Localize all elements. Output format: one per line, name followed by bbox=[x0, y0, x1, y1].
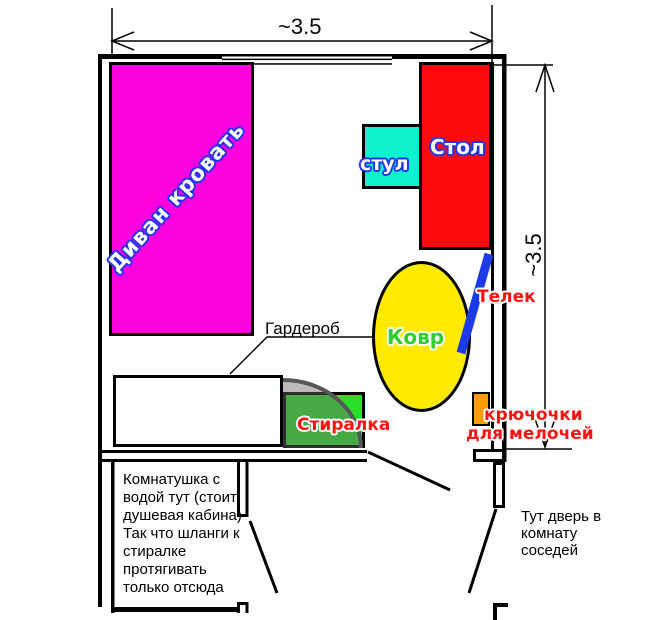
wardrobe-label: Гардероб bbox=[265, 320, 340, 338]
table-label: Стол bbox=[430, 135, 485, 159]
hooks-label-line1: крючочки bbox=[484, 405, 583, 425]
utility-note-line: водой тут (стоит bbox=[123, 489, 242, 507]
hooks-label-line2: для мелочей bbox=[466, 424, 594, 444]
neighbor-note-line: соседей bbox=[521, 542, 601, 559]
utility-room-note: Комнатушка с водой тут (стоит душевая ка… bbox=[123, 471, 242, 597]
dimension-top-label: ~3.5 bbox=[278, 14, 321, 40]
neighbor-door-note: Тут дверь в комнату соседей bbox=[521, 508, 601, 559]
utility-note-line: стиралке bbox=[123, 543, 242, 561]
neighbor-note-line: комнату bbox=[521, 525, 601, 542]
utility-note-line: протягивать bbox=[123, 561, 242, 579]
tv-label: Телек bbox=[477, 287, 536, 307]
utility-note-line: только отсюда bbox=[123, 579, 242, 597]
utility-note-line: Так что шланги к bbox=[123, 525, 242, 543]
carpet-label: Ковр bbox=[387, 325, 444, 349]
chair-label: стул bbox=[360, 153, 409, 175]
utility-note-line: душевая кабина) bbox=[123, 507, 242, 525]
dimension-right-label: ~3.5 bbox=[521, 233, 547, 276]
washer-label: Стиралка bbox=[297, 415, 390, 435]
floor-plan-canvas: Диван кровать Стол стул Ковр Телек Стира… bbox=[0, 0, 645, 620]
neighbor-note-line: Тут дверь в bbox=[521, 508, 601, 525]
utility-note-line: Комнатушка с bbox=[123, 471, 242, 489]
